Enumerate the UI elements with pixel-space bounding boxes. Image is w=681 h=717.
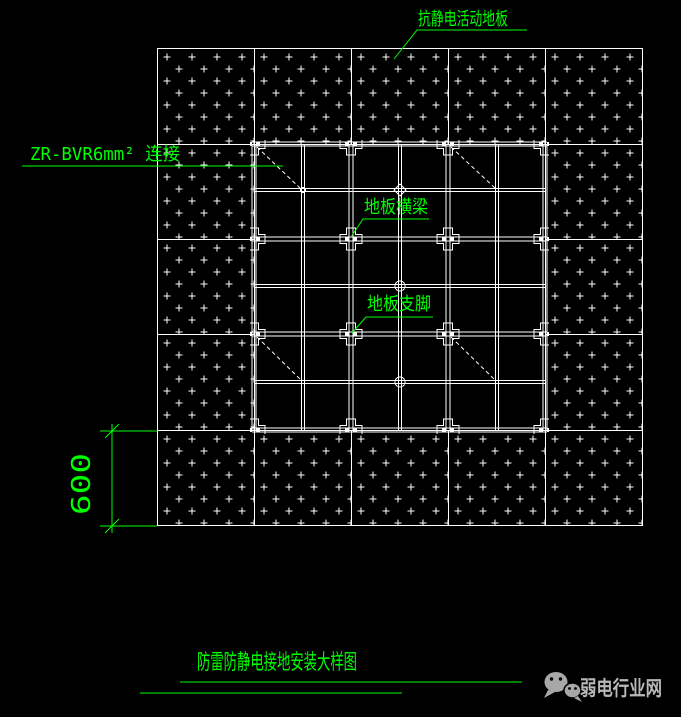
pedestal-pad [442,142,446,146]
floor-support-label-text: 地板支脚 [367,294,431,315]
stipple-plus-icon [455,436,549,527]
floor-tile [546,240,646,336]
ground-wire-label-text: ZR-BVR6mm² 连接 [30,144,180,165]
pedestal-pad [345,428,349,432]
annotations: 抗静电活动地板 ZR-BVR6mm² 连接 地板横梁 地板支脚 600 [22,9,527,693]
pedestal-pad [539,332,543,336]
floor-tile [158,240,258,336]
floor-tile [352,431,452,527]
stipple-plus-icon [261,436,355,527]
pedestal-pad [353,428,357,432]
title-text: 防雷防静电接地安装大样图 [197,650,357,674]
ground-wire-line [257,147,301,189]
pedestal-pad [450,428,454,432]
pedestal-pad [539,237,543,241]
label-ground-wire: ZR-BVR6mm² 连接 [22,144,283,166]
floor-tile-border [546,335,643,431]
stipple-plus-icon [164,54,258,145]
floor-panel-leader-line [394,30,527,59]
stipple-plus-icon [164,340,258,431]
ground-wire-line [257,337,301,380]
drawing-svg: 抗静电活动地板 ZR-BVR6mm² 连接 地板横梁 地板支脚 600 [0,0,681,717]
ground-wire-line [451,147,496,189]
pedestal-icon [437,228,459,250]
stipple-plus-icon [552,340,646,431]
floor-tile [158,431,258,527]
pedestal-pad [353,142,357,146]
floor-tile [255,431,355,527]
pedestal-pad [256,237,260,241]
stipple-plus-icon [455,54,549,145]
floor-tile [546,145,646,241]
floor-tile-border [546,49,643,145]
pedestal-pad [450,237,454,241]
pedestal-pad [353,237,357,241]
pedestal-pad [539,142,543,146]
pedestal-pad [442,237,446,241]
floor-beam-label-text: 地板横梁 [364,197,428,218]
floor-beam-leader-line [351,219,429,237]
pedestal-icon [340,228,362,250]
label-floor-beam: 地板横梁 [351,197,429,237]
pedestal-pad [345,142,349,146]
floor-tile-border [449,49,546,145]
floor-tile-border [255,49,352,145]
pedestal-pad [256,332,260,336]
floor-tile [449,49,549,145]
pedestal-pad [345,237,349,241]
floor-tile-border [352,49,449,145]
floor-tile [449,431,549,527]
floor-support-leader-line [352,317,433,333]
wire-diagonals [257,147,496,380]
understructure [243,133,556,441]
dimension-600: 600 [67,424,157,533]
floor-tile [352,49,452,145]
floor-tile [158,49,258,145]
floor-tile-border [158,335,255,431]
circle-marker-icon [395,377,405,387]
brand-footer: 弱电行业网 [544,672,662,702]
label-floor-panel: 抗静电活动地板 [394,9,527,59]
pedestal-pad [353,332,357,336]
drawing-title: 防雷防静电接地安装大样图 [140,650,522,693]
pedestal-pad [442,332,446,336]
stipple-plus-icon [164,245,258,336]
floor-tile [255,49,355,145]
dimension-value: 600 [67,453,97,515]
stipple-plus-icon [358,54,452,145]
floor-tile-border [158,49,255,145]
ground-wire-line [451,337,495,380]
floor-tile [546,431,646,527]
stipple-plus-icon [552,150,646,241]
pedestal-pad [256,142,260,146]
stipple-plus-icon [261,54,355,145]
stipple-plus-icon [164,436,258,527]
stipple-plus-icon [552,245,646,336]
pedestal-pad [345,332,349,336]
brand-name: 弱电行业网 [580,676,662,700]
floor-tile [546,49,646,145]
floor-tile [546,335,646,431]
stipple-plus-icon [552,54,646,145]
label-floor-support: 地板支脚 [352,294,433,333]
floor-panel-label-text: 抗静电活动地板 [418,9,508,30]
stipple-plus-icon [358,436,452,527]
pedestal-pad [450,332,454,336]
pedestal-icon [340,323,362,345]
pedestal-icon [437,323,459,345]
circle-marker-icon [395,281,405,291]
pedestal-pad [256,428,260,432]
floor-tile [158,335,258,431]
pedestal-pad [539,428,543,432]
cad-canvas: 抗静电活动地板 ZR-BVR6mm² 连接 地板横梁 地板支脚 600 [0,0,681,717]
diamond-marker-icon [394,184,406,196]
pedestal-pad [442,428,446,432]
pedestal-pad [450,142,454,146]
wechat-icon [544,672,582,702]
stipple-plus-icon [552,436,646,527]
